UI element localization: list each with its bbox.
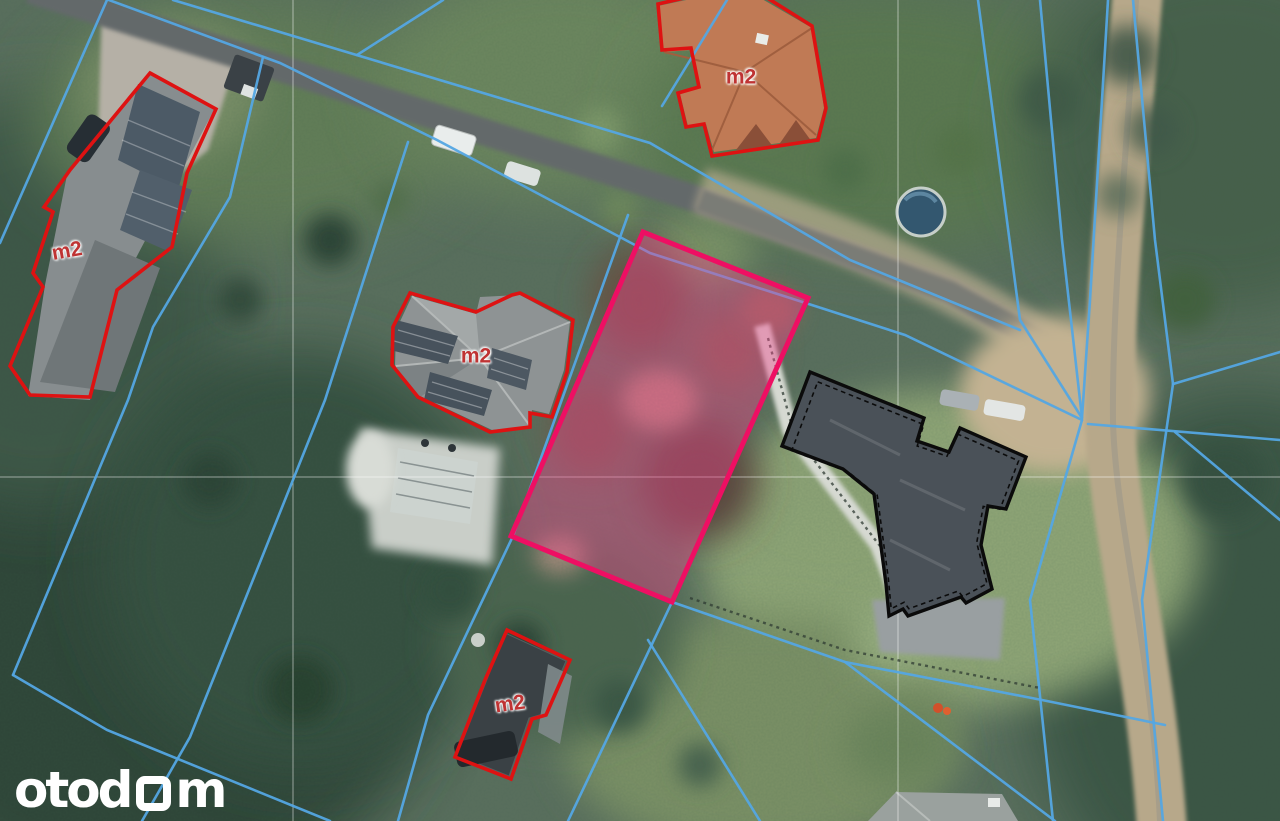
watermark-text-right: m	[175, 765, 224, 815]
m2-label-left-building: m2	[50, 238, 84, 264]
orange-object	[933, 703, 943, 713]
pool	[897, 188, 945, 236]
watermark-otodom: otodm	[14, 762, 225, 818]
aerial-cadastral-map: m2 m2 m2 m2 otodm	[0, 0, 1280, 821]
m2-label-center-building: m2	[461, 346, 491, 367]
square-glyph	[136, 776, 171, 811]
m2-label-bottom-building: m2	[494, 691, 527, 716]
aerial-photo	[0, 0, 1280, 821]
m2-label-top-building: m2	[726, 67, 756, 88]
watermark-text-left: otod	[14, 765, 130, 815]
